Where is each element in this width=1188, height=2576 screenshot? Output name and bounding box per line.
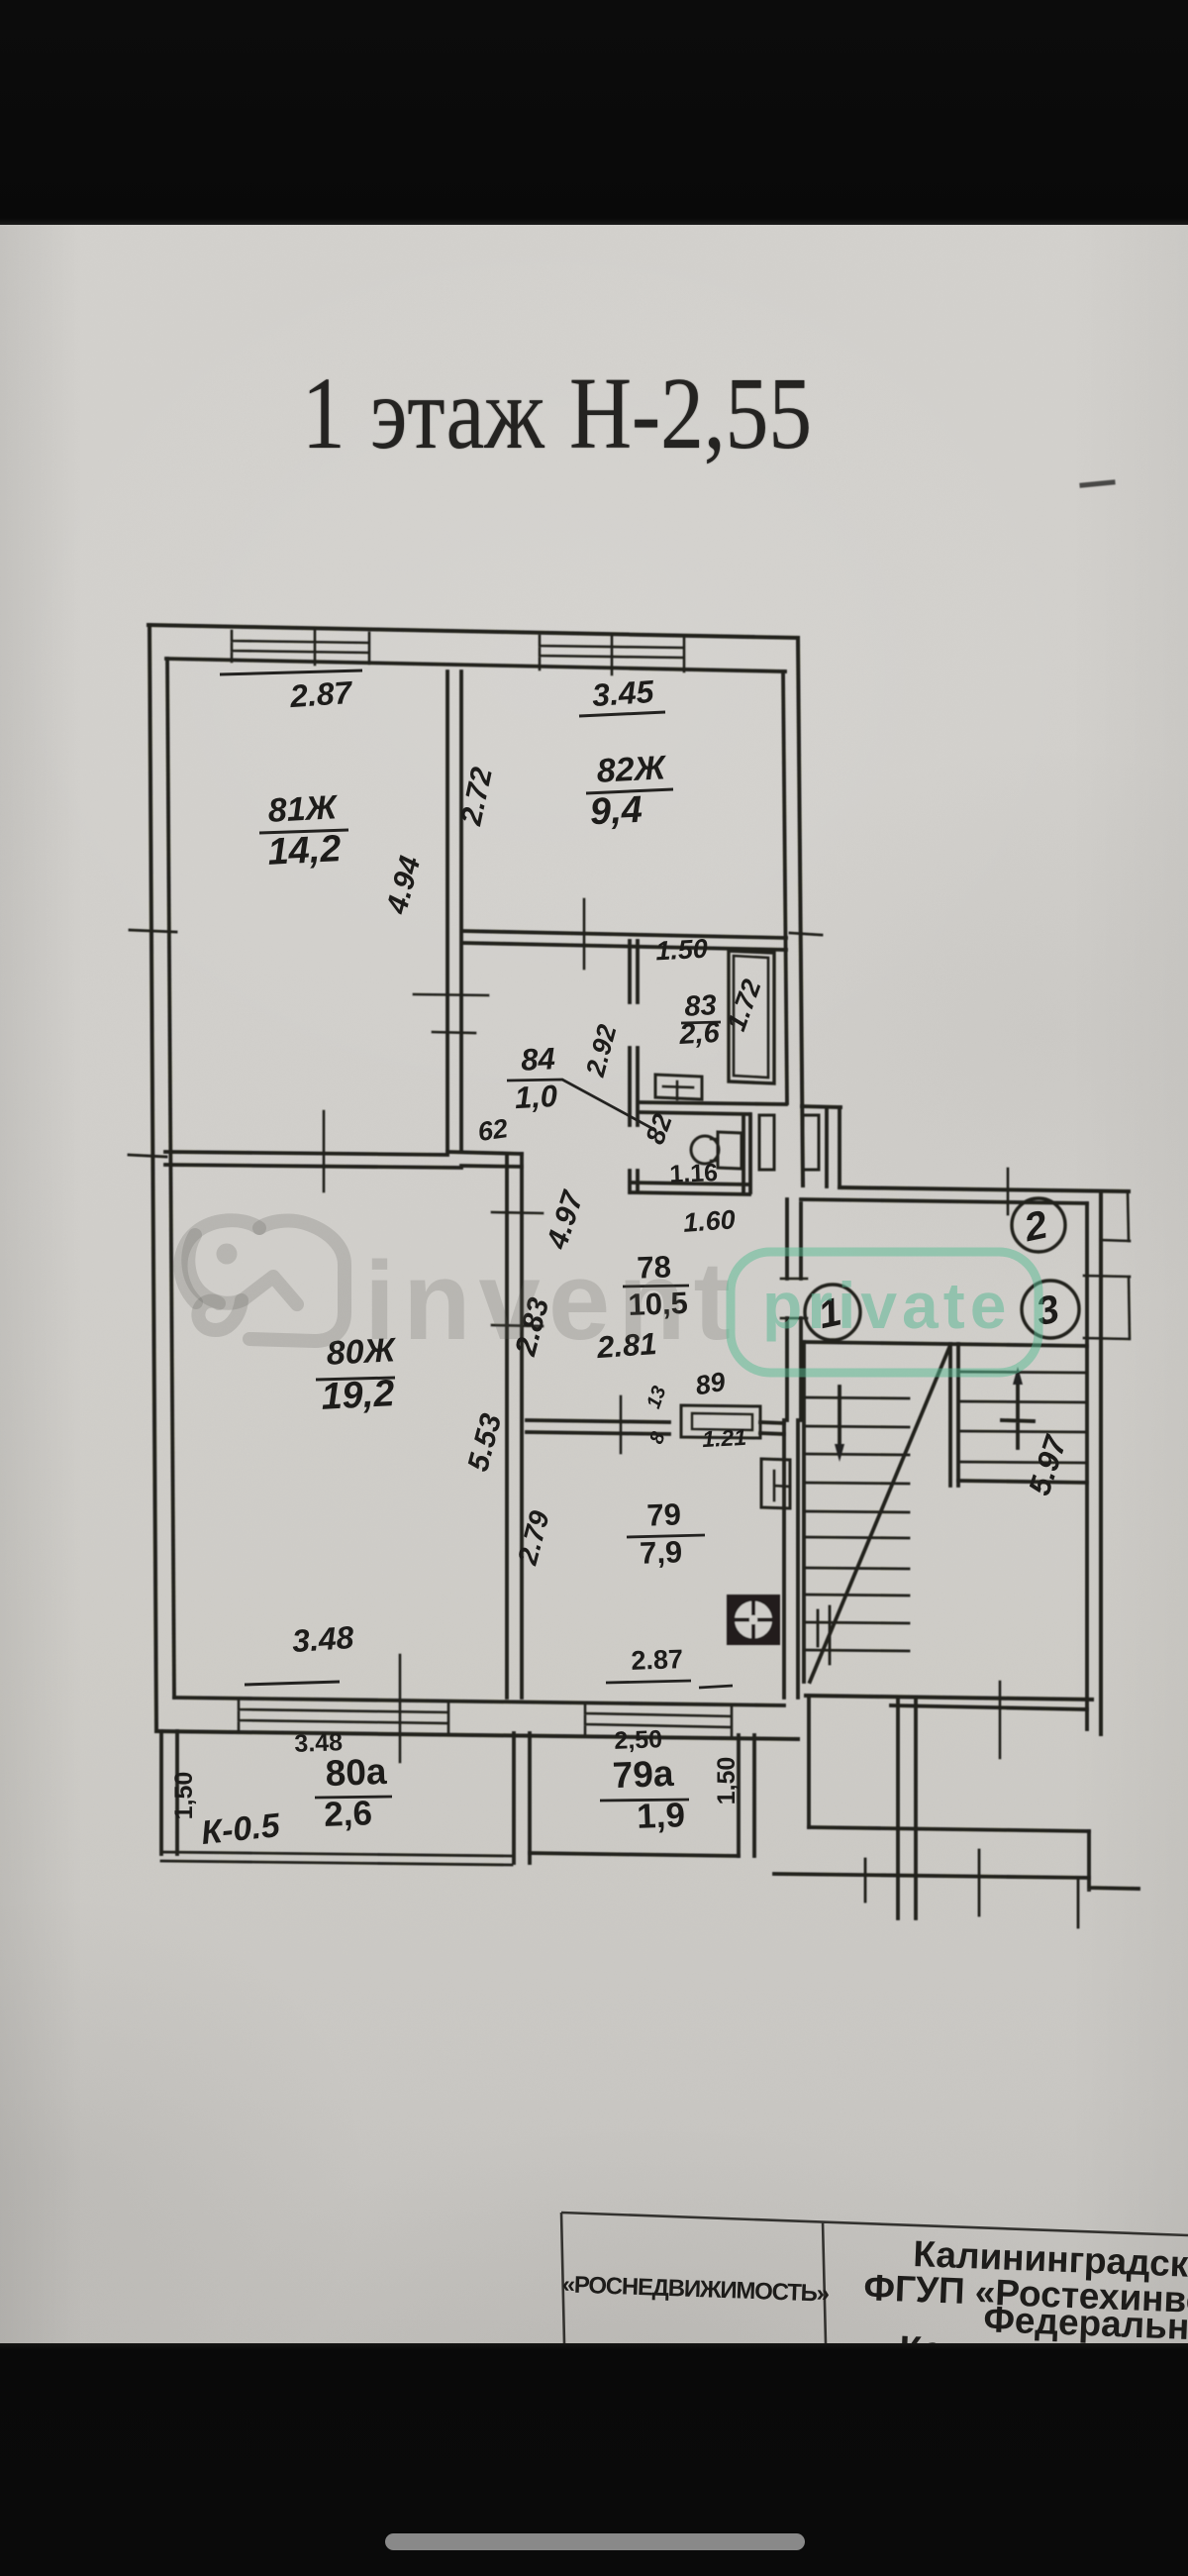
svg-text:2.87: 2.87 xyxy=(288,674,355,714)
svg-text:80а: 80а xyxy=(325,1751,388,1794)
svg-text:79: 79 xyxy=(646,1496,682,1532)
svg-text:62: 62 xyxy=(476,1113,510,1147)
svg-text:14,2: 14,2 xyxy=(266,828,342,874)
svg-text:1.21: 1.21 xyxy=(702,1424,747,1452)
svg-text:81Ж: 81Ж xyxy=(267,788,341,830)
svg-text:1,9: 1,9 xyxy=(637,1796,686,1836)
svg-text:79а: 79а xyxy=(612,1753,675,1796)
svg-text:3.45: 3.45 xyxy=(591,673,656,713)
svg-text:2,6: 2,6 xyxy=(678,1017,722,1051)
svg-text:1.50: 1.50 xyxy=(654,934,708,967)
svg-text:private: private xyxy=(762,1269,1011,1342)
svg-text:89: 89 xyxy=(693,1367,728,1401)
svg-text:2,50: 2,50 xyxy=(614,1725,663,1755)
svg-text:7,9: 7,9 xyxy=(639,1534,682,1570)
svg-text:19,2: 19,2 xyxy=(320,1373,395,1418)
svg-text:1.16: 1.16 xyxy=(669,1159,719,1188)
svg-text:1,50: 1,50 xyxy=(713,1757,741,1805)
svg-text:2,6: 2,6 xyxy=(324,1794,373,1834)
svg-text:invent: invent xyxy=(364,1239,739,1363)
svg-text:2.87: 2.87 xyxy=(631,1644,684,1676)
svg-text:82Ж: 82Ж xyxy=(596,749,669,790)
svg-text:1.60: 1.60 xyxy=(682,1204,737,1238)
svg-text:3.48: 3.48 xyxy=(291,1619,355,1659)
svg-text:9,4: 9,4 xyxy=(589,789,643,834)
svg-text:1,0: 1,0 xyxy=(514,1079,558,1115)
svg-text:84: 84 xyxy=(520,1041,555,1078)
svg-text:1,50: 1,50 xyxy=(170,1772,198,1820)
